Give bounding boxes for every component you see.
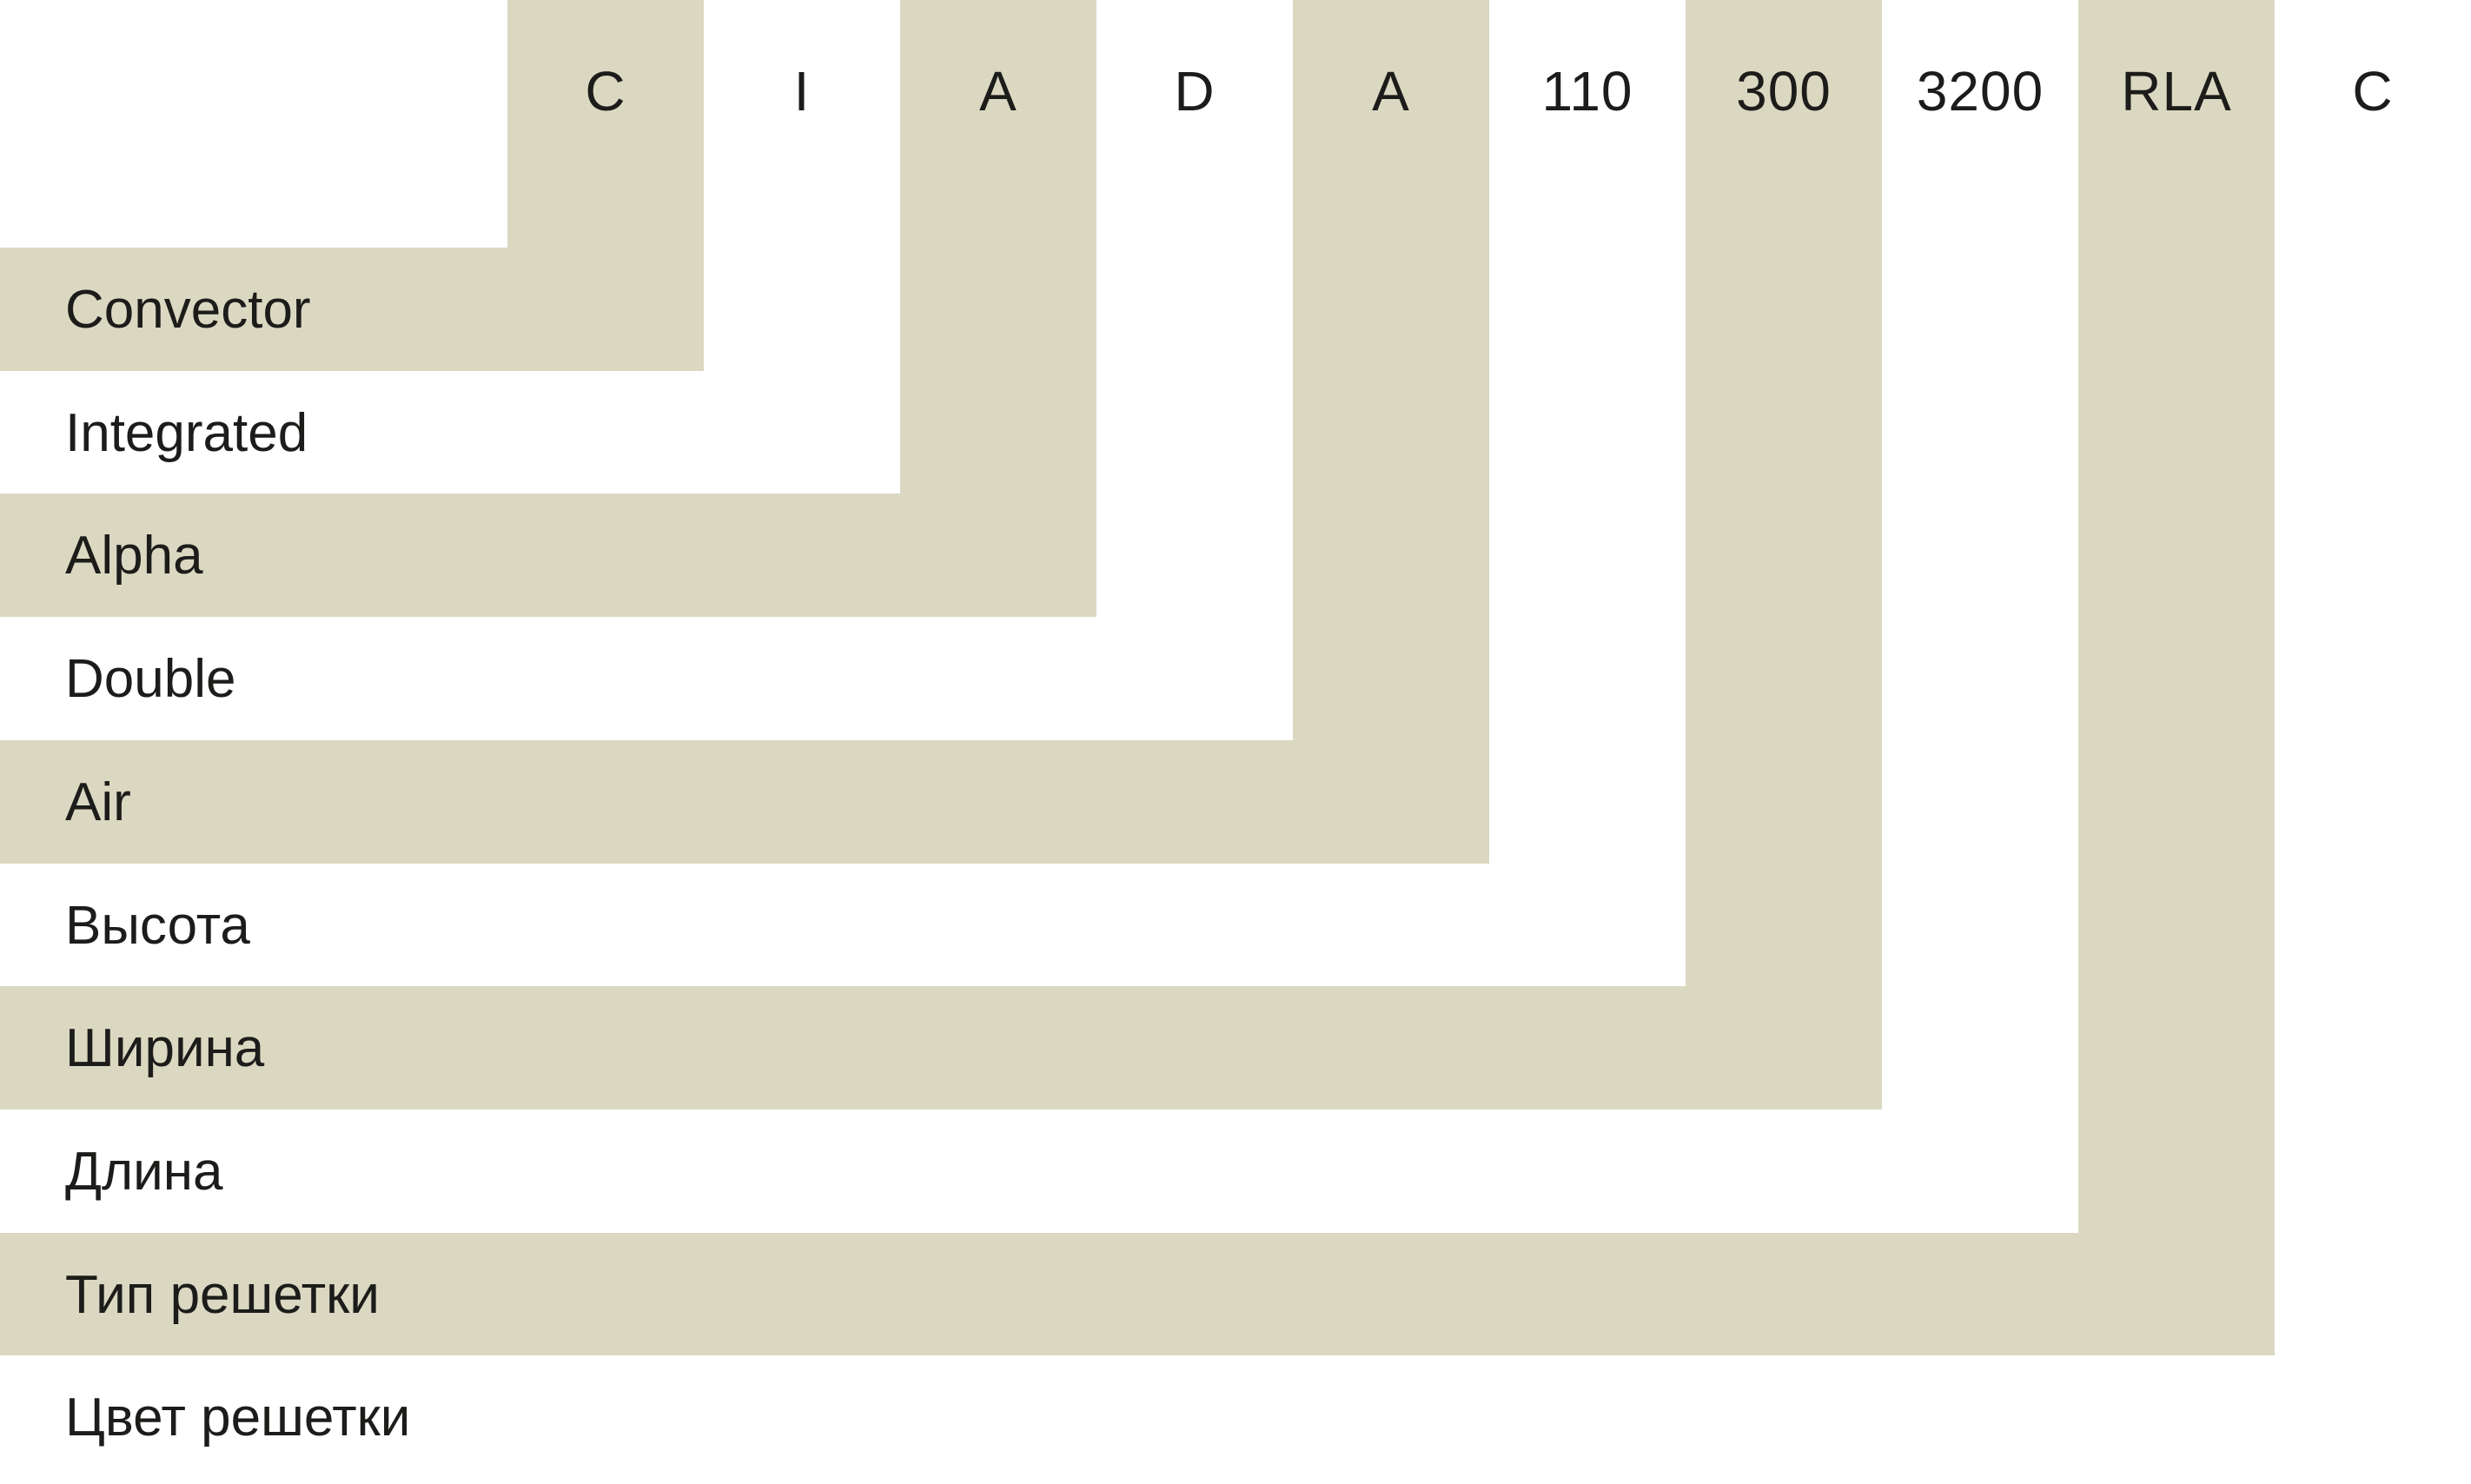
code-segment-5: 110 [1489,0,1686,182]
code-segment-0: C [507,0,704,182]
code-segment-6: 300 [1686,0,1882,182]
row-label-alpha: Alpha [65,494,203,617]
band-row-ширина [0,986,1882,1110]
row-label-ширина: Ширина [65,986,264,1110]
row-label-air: Air [65,740,131,864]
row-label-высота: Высота [65,864,250,987]
code-segment-3: D [1096,0,1293,182]
code-segment-7: 3200 [1882,0,2078,182]
band-row-air [0,740,1489,864]
row-label-integrated: Integrated [65,371,308,494]
code-segment-2: A [900,0,1096,182]
row-label-длина: Длина [65,1110,223,1233]
code-segment-1: I [704,0,900,182]
code-segment-4: A [1293,0,1489,182]
code-segment-8: RLA [2078,0,2275,182]
product-code-diagram: CIADA1103003200RLAC ConvectorIntegratedA… [0,0,2471,1484]
row-label-цвет-решетки: Цвет решетки [65,1355,410,1479]
row-label-convector: Convector [65,248,311,371]
row-label-double: Double [65,617,235,740]
code-segment-9: C [2275,0,2471,182]
row-label-тип-решетки: Тип решетки [65,1233,380,1356]
band-column-rla-8 [2078,0,2275,1355]
